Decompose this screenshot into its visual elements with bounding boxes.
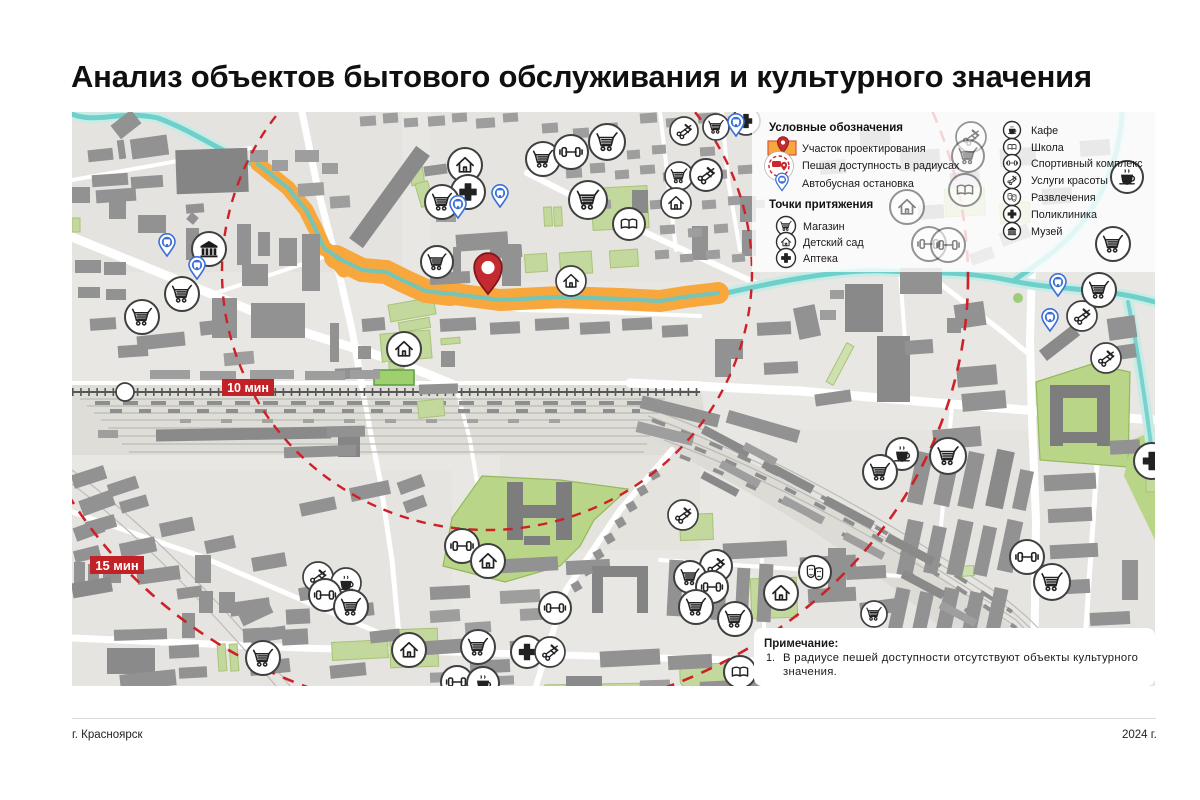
svg-text:значения.: значения. — [783, 666, 837, 678]
svg-text:Услуги красоты: Услуги красоты — [1031, 175, 1108, 187]
svg-text:Кафе: Кафе — [1031, 125, 1058, 137]
svg-text:Музей: Музей — [1031, 226, 1062, 238]
svg-text:Магазин: Магазин — [803, 221, 845, 233]
svg-text:Поликлиника: Поликлиника — [1031, 209, 1097, 221]
svg-text:Примечание:: Примечание: — [764, 638, 838, 650]
svg-text:Автобусная остановка: Автобусная остановка — [802, 178, 914, 190]
svg-text:Спортивный комплекс: Спортивный комплекс — [1031, 158, 1143, 170]
svg-text:10 мин: 10 мин — [227, 381, 269, 395]
svg-text:В радиусе пешей доступности от: В радиусе пешей доступности отсутствуют … — [783, 652, 1138, 664]
svg-text:Условные обозначения: Условные обозначения — [769, 122, 903, 134]
svg-text:Пешая доступность в радиусах: Пешая доступность в радиусах — [802, 160, 960, 172]
svg-text:Школа: Школа — [1031, 142, 1064, 154]
svg-text:Участок проектирования: Участок проектирования — [802, 143, 926, 155]
svg-text:1.: 1. — [766, 652, 775, 664]
svg-text:Детский сад: Детский сад — [803, 237, 864, 249]
svg-text:Аптека: Аптека — [803, 253, 838, 265]
svg-text:15 мин: 15 мин — [95, 558, 139, 573]
svg-text:Точки притяжения: Точки притяжения — [769, 199, 873, 211]
svg-text:Развлечения: Развлечения — [1031, 192, 1096, 204]
